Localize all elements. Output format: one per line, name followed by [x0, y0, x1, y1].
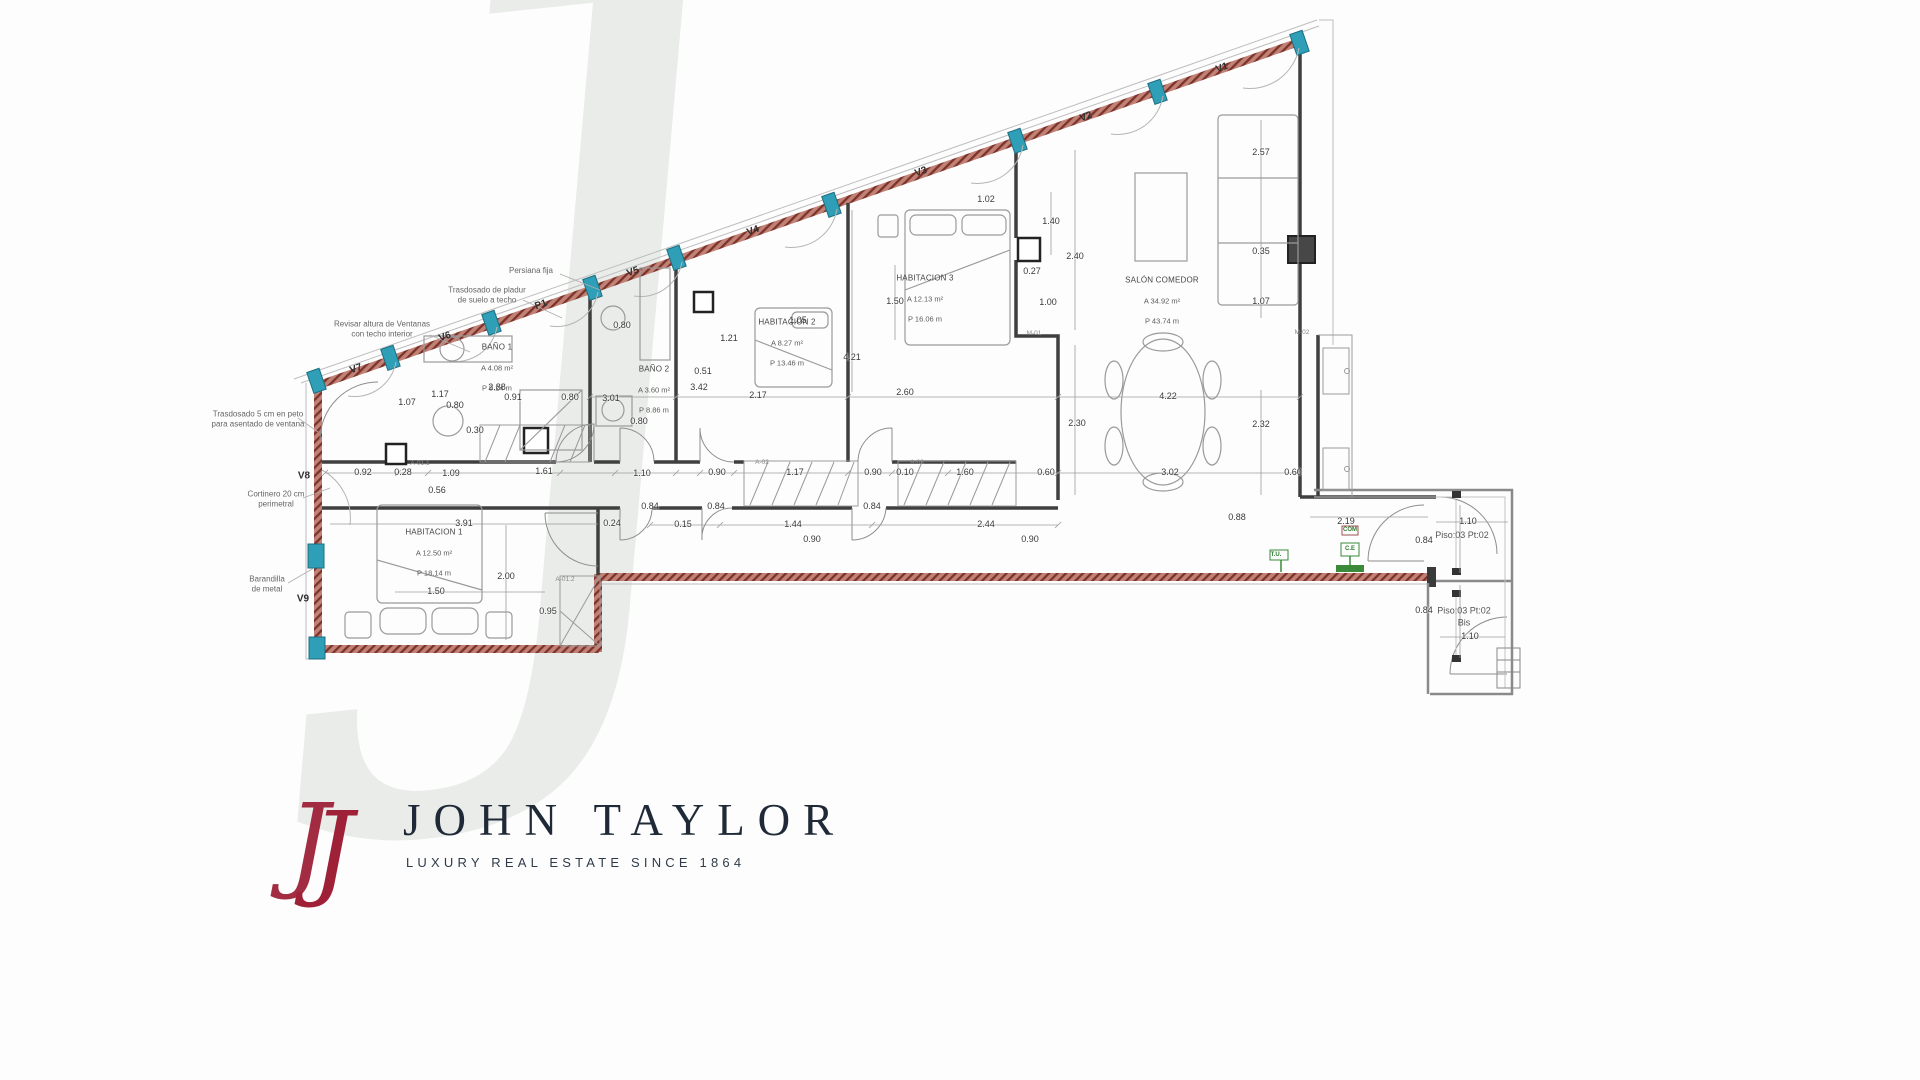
dimension-label: 1.17 — [431, 389, 449, 401]
module-label: A-03 — [910, 459, 924, 467]
dimension-label: 3.42 — [690, 382, 708, 394]
dimension-label: 0.90 — [803, 534, 821, 546]
dimension-label: 2.19 — [1337, 516, 1355, 528]
dimension-label: 0.80 — [561, 392, 579, 404]
dimension-label: 2.44 — [977, 519, 995, 531]
plan-labels-layer: 1.501.021.402.400.271.002.570.351.074.22… — [0, 0, 1920, 1080]
dimension-label: 0.88 — [1228, 512, 1246, 524]
room-label: SALÓN COMEDOR A 34.92 m² P 43.74 m — [1125, 265, 1199, 336]
opening-label: V7 — [348, 361, 364, 377]
dimension-label: 0.28 — [394, 467, 412, 479]
dimension-label: 1.09 — [442, 468, 460, 480]
dimension-label: 1.61 — [535, 466, 553, 478]
dimension-label: 1.10 — [1459, 516, 1477, 528]
room-label: HABITACION 1 A 12.50 m² P 18.14 m — [405, 517, 462, 588]
dimension-label: 2.32 — [1252, 419, 1270, 431]
module-label: A-01.1 — [410, 460, 429, 468]
landing-label: Piso:03 Pt:02 — [1435, 530, 1489, 542]
dimension-label: 0.80 — [613, 320, 631, 332]
room-area: A 12.50 m² — [405, 548, 462, 558]
module-label: M-02 — [1295, 329, 1310, 337]
dimension-label: 0.90 — [708, 467, 726, 479]
room-area: A 8.27 m² — [758, 338, 815, 348]
dimension-label: 0.84 — [863, 501, 881, 513]
dimension-label: 1.17 — [786, 467, 804, 479]
dimension-label: 0.10 — [896, 467, 914, 479]
dimension-label: 0.84 — [1415, 535, 1433, 547]
dimension-label: 0.90 — [1021, 534, 1039, 546]
dimension-label: 3.01 — [602, 393, 620, 405]
dimension-label: 1.44 — [784, 519, 802, 531]
room-perimeter: P 16.06 m — [896, 315, 953, 325]
john-taylor-logo: J J JOHN TAYLOR LUXURY REAL ESTATE SINCE… — [288, 796, 846, 896]
logo-monogram-icon: J J — [288, 796, 393, 896]
room-name: SALÓN COMEDOR — [1125, 276, 1199, 286]
monogram-j-front: J — [312, 798, 354, 902]
room-perimeter: P 13.46 m — [758, 359, 815, 369]
logo-wordmark: JOHN TAYLOR LUXURY REAL ESTATE SINCE 186… — [403, 796, 846, 870]
opening-label: P1 — [533, 297, 549, 313]
annotation-label: Trasdosado de pladur de suelo a techo — [448, 286, 526, 307]
opening-label: V8 — [298, 470, 310, 483]
room-area: A 3.60 m² — [638, 385, 670, 395]
room-label: HABITACION 2 A 8.27 m² P 13.46 m — [758, 307, 815, 378]
room-perimeter: P 9.24 m — [481, 384, 513, 394]
dimension-label: 0.80 — [446, 400, 464, 412]
opening-label: V2 — [1078, 109, 1094, 125]
module-label: A-01.2 — [555, 576, 574, 584]
room-area: A 34.92 m² — [1125, 296, 1199, 306]
annotation-label: Cortinero 20 cm perimetral — [248, 490, 305, 511]
dimension-label: 1.00 — [1039, 297, 1057, 309]
landing-label: Piso:03 Pt:02 Bis — [1437, 605, 1491, 628]
dimension-label: 0.92 — [354, 467, 372, 479]
dimension-label: 2.40 — [1066, 251, 1084, 263]
dimension-label: 1.02 — [977, 194, 995, 206]
dimension-label: 1.21 — [720, 333, 738, 345]
room-label: HABITACION 3 A 12.13 m² P 16.06 m — [896, 263, 953, 334]
annotation-label: Trasdosado 5 cm en peto para asentado de… — [212, 410, 305, 431]
dimension-label: 0.60 — [1037, 467, 1055, 479]
room-area: A 4.08 m² — [481, 363, 513, 373]
opening-label: V3 — [913, 164, 929, 180]
room-name: BAÑO 2 — [638, 365, 670, 375]
opening-label: V6 — [437, 329, 453, 345]
dimension-label: 3.02 — [1161, 467, 1179, 479]
room-label: BAÑO 2 A 3.60 m² P 8.86 m — [638, 354, 670, 425]
opening-label: V1 — [1214, 60, 1230, 76]
dimension-label: 1.10 — [1461, 631, 1479, 643]
dimension-label: 1.10 — [633, 468, 651, 480]
room-label: BAÑO 1 A 4.08 m² P 9.24 m — [481, 332, 513, 403]
annotation-label: Barandilla de metal — [249, 575, 285, 596]
dimension-label: 2.60 — [896, 387, 914, 399]
dimension-label: 0.27 — [1023, 266, 1041, 278]
dimension-label: 2.00 — [497, 571, 515, 583]
annotation-label: Persiana fija — [509, 266, 553, 276]
dimension-label: 0.95 — [539, 606, 557, 618]
room-name: HABITACION 2 — [758, 318, 815, 328]
opening-label: V4 — [745, 223, 761, 239]
floor-plan-page: J — [0, 0, 1920, 1080]
dimension-label: 2.57 — [1252, 147, 1270, 159]
dimension-label: 0.24 — [603, 518, 621, 530]
dimension-label: 0.51 — [694, 366, 712, 378]
dimension-label: 0.30 — [466, 425, 484, 437]
dimension-label: 0.56 — [428, 485, 446, 497]
opening-label: V9 — [297, 593, 309, 606]
dimension-label: 1.60 — [956, 467, 974, 479]
module-label: A-02 — [755, 459, 769, 467]
dimension-label: 0.84 — [707, 501, 725, 513]
dimension-label: 0.60 — [1284, 467, 1302, 479]
brand-name: JOHN TAYLOR — [403, 796, 846, 846]
dimension-label: 0.84 — [1415, 605, 1433, 617]
annotation-label: Revisar altura de Ventanas con techo int… — [334, 320, 430, 341]
dimension-label: 1.07 — [398, 397, 416, 409]
room-perimeter: P 18.14 m — [405, 569, 462, 579]
dimension-label: 0.15 — [674, 519, 692, 531]
dimension-label: 0.90 — [864, 467, 882, 479]
room-name: HABITACION 3 — [896, 274, 953, 284]
dimension-label: 4.22 — [1159, 391, 1177, 403]
dimension-label: 4.21 — [843, 352, 861, 364]
brand-tagline: LUXURY REAL ESTATE SINCE 1864 — [406, 855, 846, 870]
dimension-label: 1.40 — [1042, 216, 1060, 228]
dimension-label: 1.07 — [1252, 296, 1270, 308]
room-name: BAÑO 1 — [481, 343, 513, 353]
room-name: HABITACION 1 — [405, 528, 462, 538]
room-area: A 12.13 m² — [896, 294, 953, 304]
room-perimeter: P 8.86 m — [638, 406, 670, 416]
dimension-label: 2.17 — [749, 390, 767, 402]
dimension-label: 2.30 — [1068, 418, 1086, 430]
utility-label: T.U. — [1271, 552, 1282, 560]
module-label: M-01 — [1027, 330, 1042, 338]
dimension-label: 0.84 — [641, 501, 659, 513]
opening-label: V5 — [625, 264, 641, 280]
utility-label: C.E — [1345, 546, 1355, 554]
room-perimeter: P 43.74 m — [1125, 317, 1199, 327]
utility-label: COM — [1343, 527, 1357, 535]
dimension-label: 0.35 — [1252, 246, 1270, 258]
